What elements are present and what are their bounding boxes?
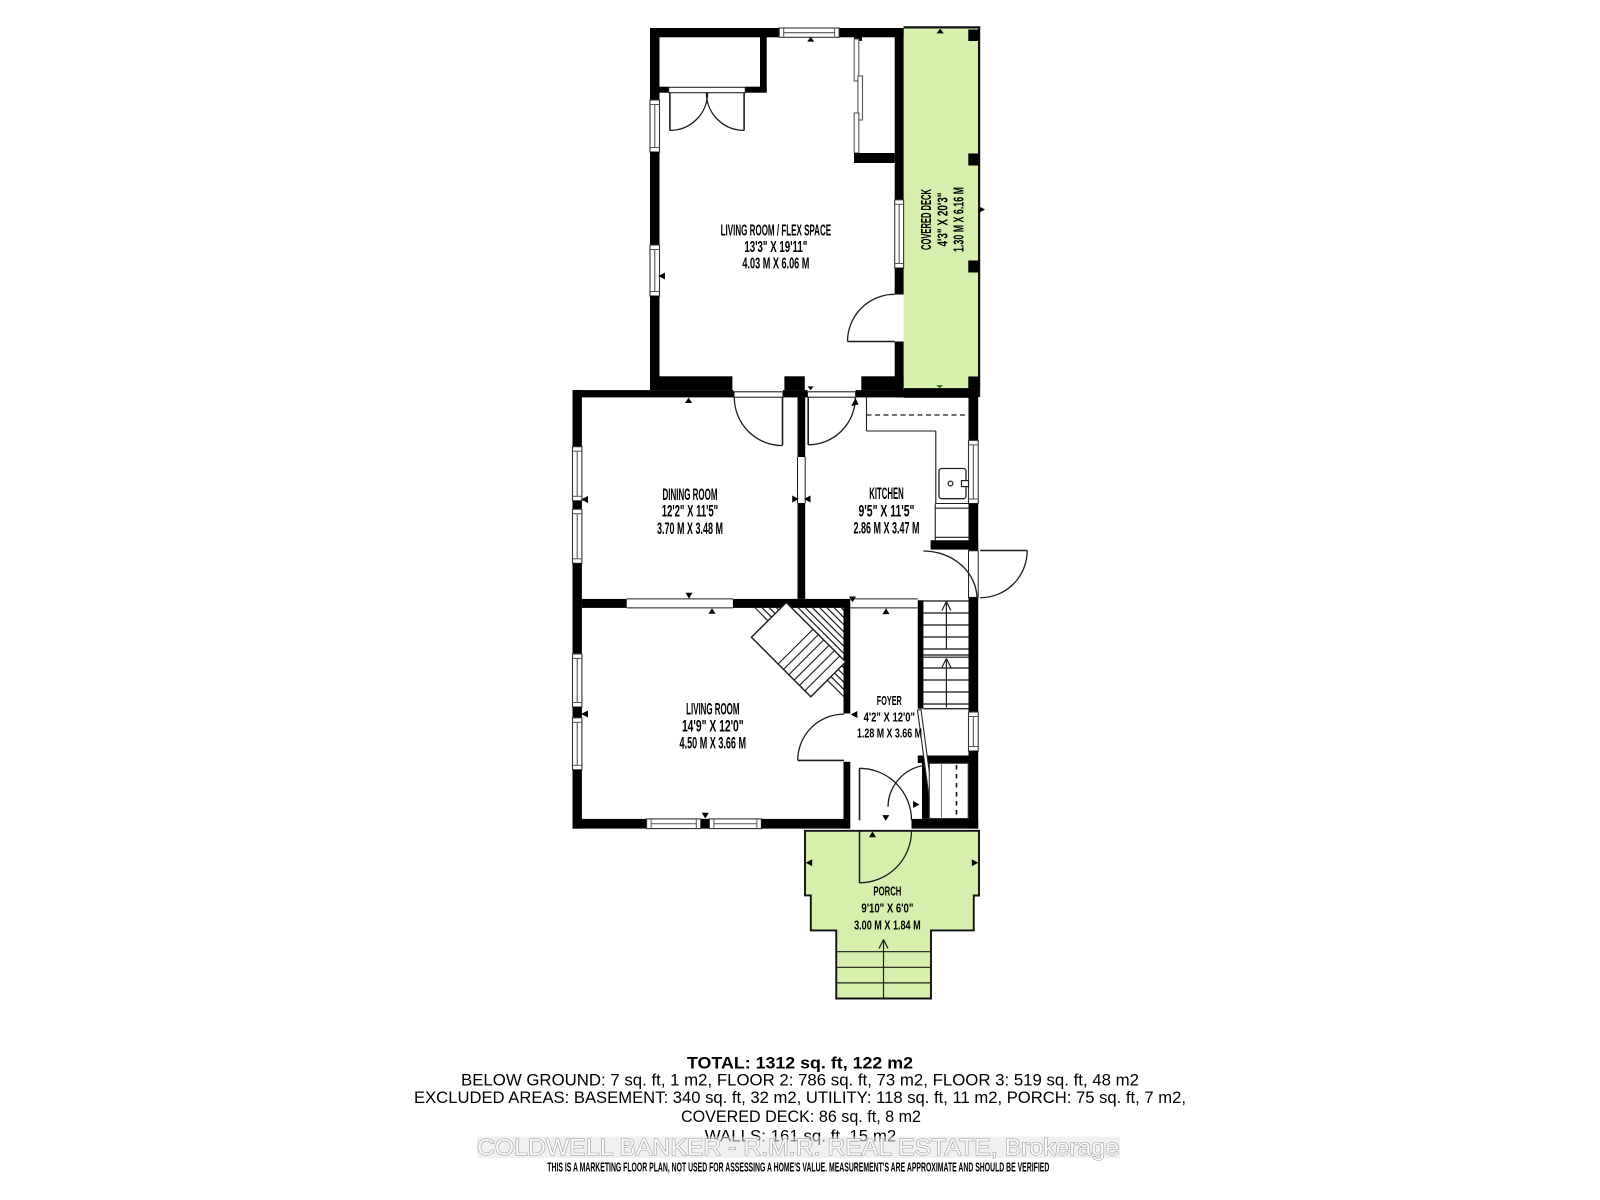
- svg-text:COVERED DECK: COVERED DECK: [919, 189, 935, 250]
- svg-text:1.28 M X 3.66 M: 1.28 M X 3.66 M: [857, 725, 922, 740]
- svg-text:1.30 M X 6.16 M: 1.30 M X 6.16 M: [952, 187, 968, 252]
- svg-text:13'3" X 19'11": 13'3" X 19'11": [744, 239, 807, 256]
- svg-text:12'2" X 11'5": 12'2" X 11'5": [662, 503, 718, 521]
- svg-text:3.00 M X 1.84 M: 3.00 M X 1.84 M: [854, 919, 921, 933]
- svg-text:DINING ROOM: DINING ROOM: [663, 486, 718, 504]
- svg-text:3.70 M X 3.48 M: 3.70 M X 3.48 M: [657, 520, 723, 538]
- svg-text:9'5" X 11'5": 9'5" X 11'5": [859, 503, 915, 521]
- svg-text:PORCH: PORCH: [873, 885, 901, 899]
- svg-text:4'2" X 12'0": 4'2" X 12'0": [864, 710, 915, 725]
- svg-text:4'3" X 20'3": 4'3" X 20'3": [936, 193, 952, 247]
- svg-text:COVERED DECK: 86 sq. ft, 8 m2: COVERED DECK: 86 sq. ft, 8 m2: [681, 1107, 921, 1126]
- svg-text:KITCHEN: KITCHEN: [869, 485, 904, 503]
- svg-text:14'9" X 12'0": 14'9" X 12'0": [682, 718, 744, 736]
- svg-text:2.86 M X 3.47 M: 2.86 M X 3.47 M: [854, 520, 920, 538]
- svg-text:THIS IS A MARKETING FLOOR PLAN: THIS IS A MARKETING FLOOR PLAN, NOT USED…: [547, 1160, 1049, 1175]
- svg-text:EXCLUDED AREAS: BASEMENT: 340: EXCLUDED AREAS: BASEMENT: 340 sq. ft, 32…: [414, 1088, 1186, 1107]
- svg-text:4.03 M X 6.06 M: 4.03 M X 6.06 M: [742, 256, 809, 273]
- svg-text:LIVING ROOM / FLEX SPACE: LIVING ROOM / FLEX SPACE: [721, 223, 832, 240]
- svg-text:LIVING ROOM: LIVING ROOM: [686, 701, 739, 719]
- svg-text:COLDWELL BANKER - R.M.R. REAL: COLDWELL BANKER - R.M.R. REAL ESTATE, Br…: [477, 1134, 1119, 1160]
- svg-text:9'10" X 6'0": 9'10" X 6'0": [861, 902, 913, 916]
- svg-text:4.50 M X 3.66 M: 4.50 M X 3.66 M: [680, 734, 747, 752]
- svg-text:FOYER: FOYER: [877, 693, 902, 708]
- svg-text:BELOW GROUND: 7 sq. ft, 1 m2,: BELOW GROUND: 7 sq. ft, 1 m2, FLOOR 2: 7…: [461, 1071, 1139, 1090]
